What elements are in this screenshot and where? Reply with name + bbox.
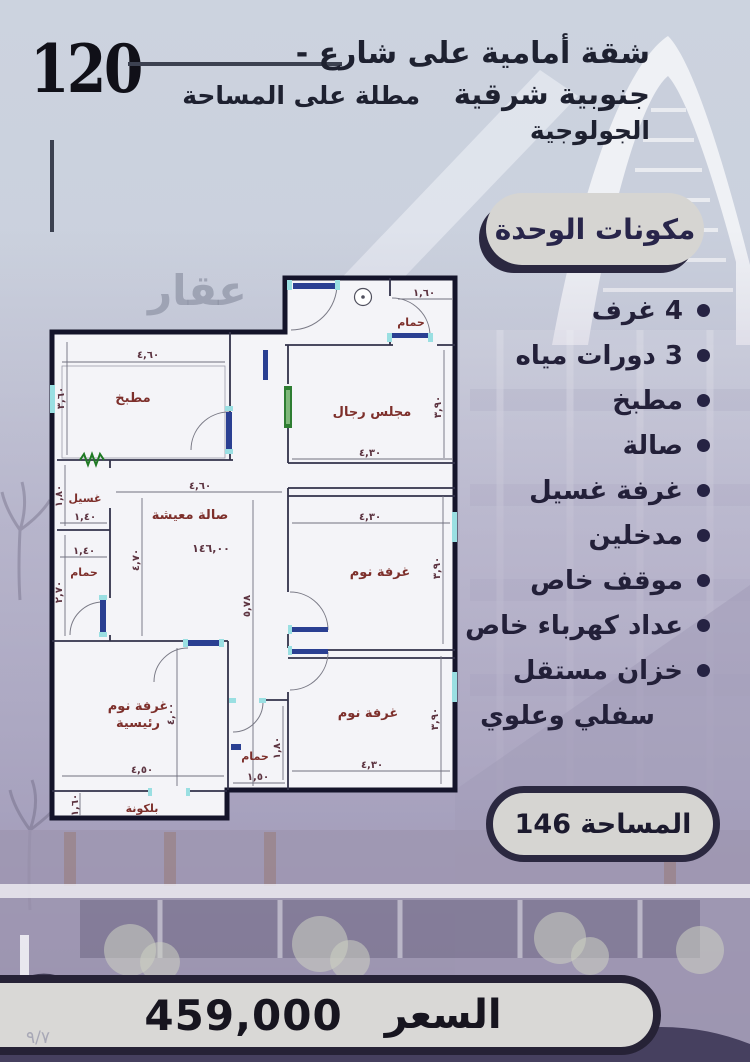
dim-bath-left-h: ٢,٧٠ <box>54 581 65 603</box>
ceiling-light-dot <box>361 295 365 299</box>
list-item: عداد كهرباء خاص <box>430 603 710 648</box>
room-label-master-2: رئيسية <box>116 716 160 731</box>
dim-kitchen-w: ٤,٦٠ <box>137 350 159 361</box>
room-label-master-1: غرفة نوم <box>108 699 168 714</box>
list-item: موقف خاص <box>430 558 710 603</box>
header-vertical-tick <box>50 140 54 232</box>
list-item-label: صالة <box>623 431 683 461</box>
price-bar: السعر 459,000 <box>0 975 661 1055</box>
list-item: غرفة غسيل <box>430 468 710 513</box>
dim-laundry-w: ١,٤٠ <box>74 512 96 523</box>
list-item: صالة <box>430 423 710 468</box>
dim-bath-bottom-h: ١,٨٠ <box>272 737 283 759</box>
bullet-icon <box>697 349 710 362</box>
list-item-label: عداد كهرباء خاص <box>465 611 683 641</box>
list-item-label: غرفة غسيل <box>529 476 683 506</box>
list-item-label: مطبخ <box>612 386 683 416</box>
room-label-bath-top: حمام <box>397 316 425 329</box>
room-label-majlis: مجلس رجال <box>333 405 412 420</box>
price-label: السعر <box>385 992 502 1038</box>
unit-components-list: 4 غرف 3 دورات مياه مطبخ صالة غرفة غسيل م… <box>430 288 710 738</box>
room-label-balcony: بلكونة <box>126 802 159 815</box>
bullet-icon <box>697 484 710 497</box>
list-item: 3 دورات مياه <box>430 333 710 378</box>
listing-title: شقة أمامية على شارع - جنوبية شرقية مطلة … <box>150 34 650 147</box>
bullet-icon <box>697 529 710 542</box>
green-door-inner <box>286 390 290 424</box>
dim-master-w: ٤,٥٠ <box>131 765 153 776</box>
room-label-living: صالة معيشة <box>152 508 229 523</box>
dim-living-area: ١٤٦,٠٠ <box>192 542 230 555</box>
room-label-laundry: غسيل <box>68 492 101 505</box>
dim-bedroom-bottom-w: ٤,٣٠ <box>361 760 383 771</box>
list-item: 4 غرف <box>430 288 710 333</box>
list-item: مطبخ <box>430 378 710 423</box>
title-orientation: جنوبية شرقية <box>454 77 650 111</box>
bullet-icon <box>697 394 710 407</box>
bullet-icon <box>697 439 710 452</box>
bullet-icon <box>697 574 710 587</box>
room-label-bath-left: حمام <box>70 566 98 579</box>
list-item-label: سفلي وعلوي <box>480 701 655 731</box>
list-item: مدخلين <box>430 513 710 558</box>
floor-plan-outer-walls <box>52 278 455 818</box>
dim-living-w: ٤,٦٠ <box>189 481 211 492</box>
list-item-label: 3 دورات مياه <box>515 341 683 371</box>
page-number: ٩/٧ <box>26 1028 50 1048</box>
list-item-label: 4 غرف <box>592 296 683 326</box>
dim-balcony-h: ١,٦٠ <box>70 794 81 816</box>
dim-kitchen-h: ٣,٦٠ <box>56 387 67 409</box>
list-item-label: خزان مستقل <box>513 656 683 686</box>
bullet-icon <box>697 619 710 632</box>
dim-bedroom-mid-w: ٤,٣٠ <box>359 512 381 523</box>
bullet-icon <box>697 304 710 317</box>
bullet-icon <box>697 664 710 677</box>
price-value: 459,000 <box>144 991 342 1040</box>
dim-master-h: ٤,٠٠ <box>166 703 177 725</box>
title-line1: شقة أمامية على شارع - <box>150 34 650 75</box>
list-item: خزان مستقل <box>430 648 710 693</box>
dim-bath-left-w: ١,٤٠ <box>73 546 95 557</box>
plot-number: 120 <box>30 30 141 108</box>
unit-components-badge: مكونات الوحدة <box>486 193 704 265</box>
list-item-label: موقف خاص <box>530 566 683 596</box>
dim-laundry-h: ١,٨٠ <box>54 485 65 507</box>
room-label-bedroom-bottom: غرفة نوم <box>338 706 398 721</box>
list-item-continuation: سفلي وعلوي <box>430 693 710 738</box>
list-item-label: مدخلين <box>589 521 683 551</box>
dim-living-h: ٤,٧٠ <box>131 549 142 571</box>
dim-bath-bottom-w: ١,٥٠ <box>247 772 269 783</box>
floor-plan: مطبخ غسيل حمام صالة معيشة مجلس رجال حمام… <box>40 270 464 828</box>
area-badge: المساحة 146 <box>486 786 720 862</box>
room-label-bedroom-mid: غرفة نوم <box>350 565 410 580</box>
dim-corridor-h: ٥,٧٨ <box>242 595 253 617</box>
dim-majlis-w: ٤,٣٠ <box>359 448 381 459</box>
room-label-kitchen: مطبخ <box>115 391 150 406</box>
room-label-bath-bottom: حمام <box>241 750 269 763</box>
